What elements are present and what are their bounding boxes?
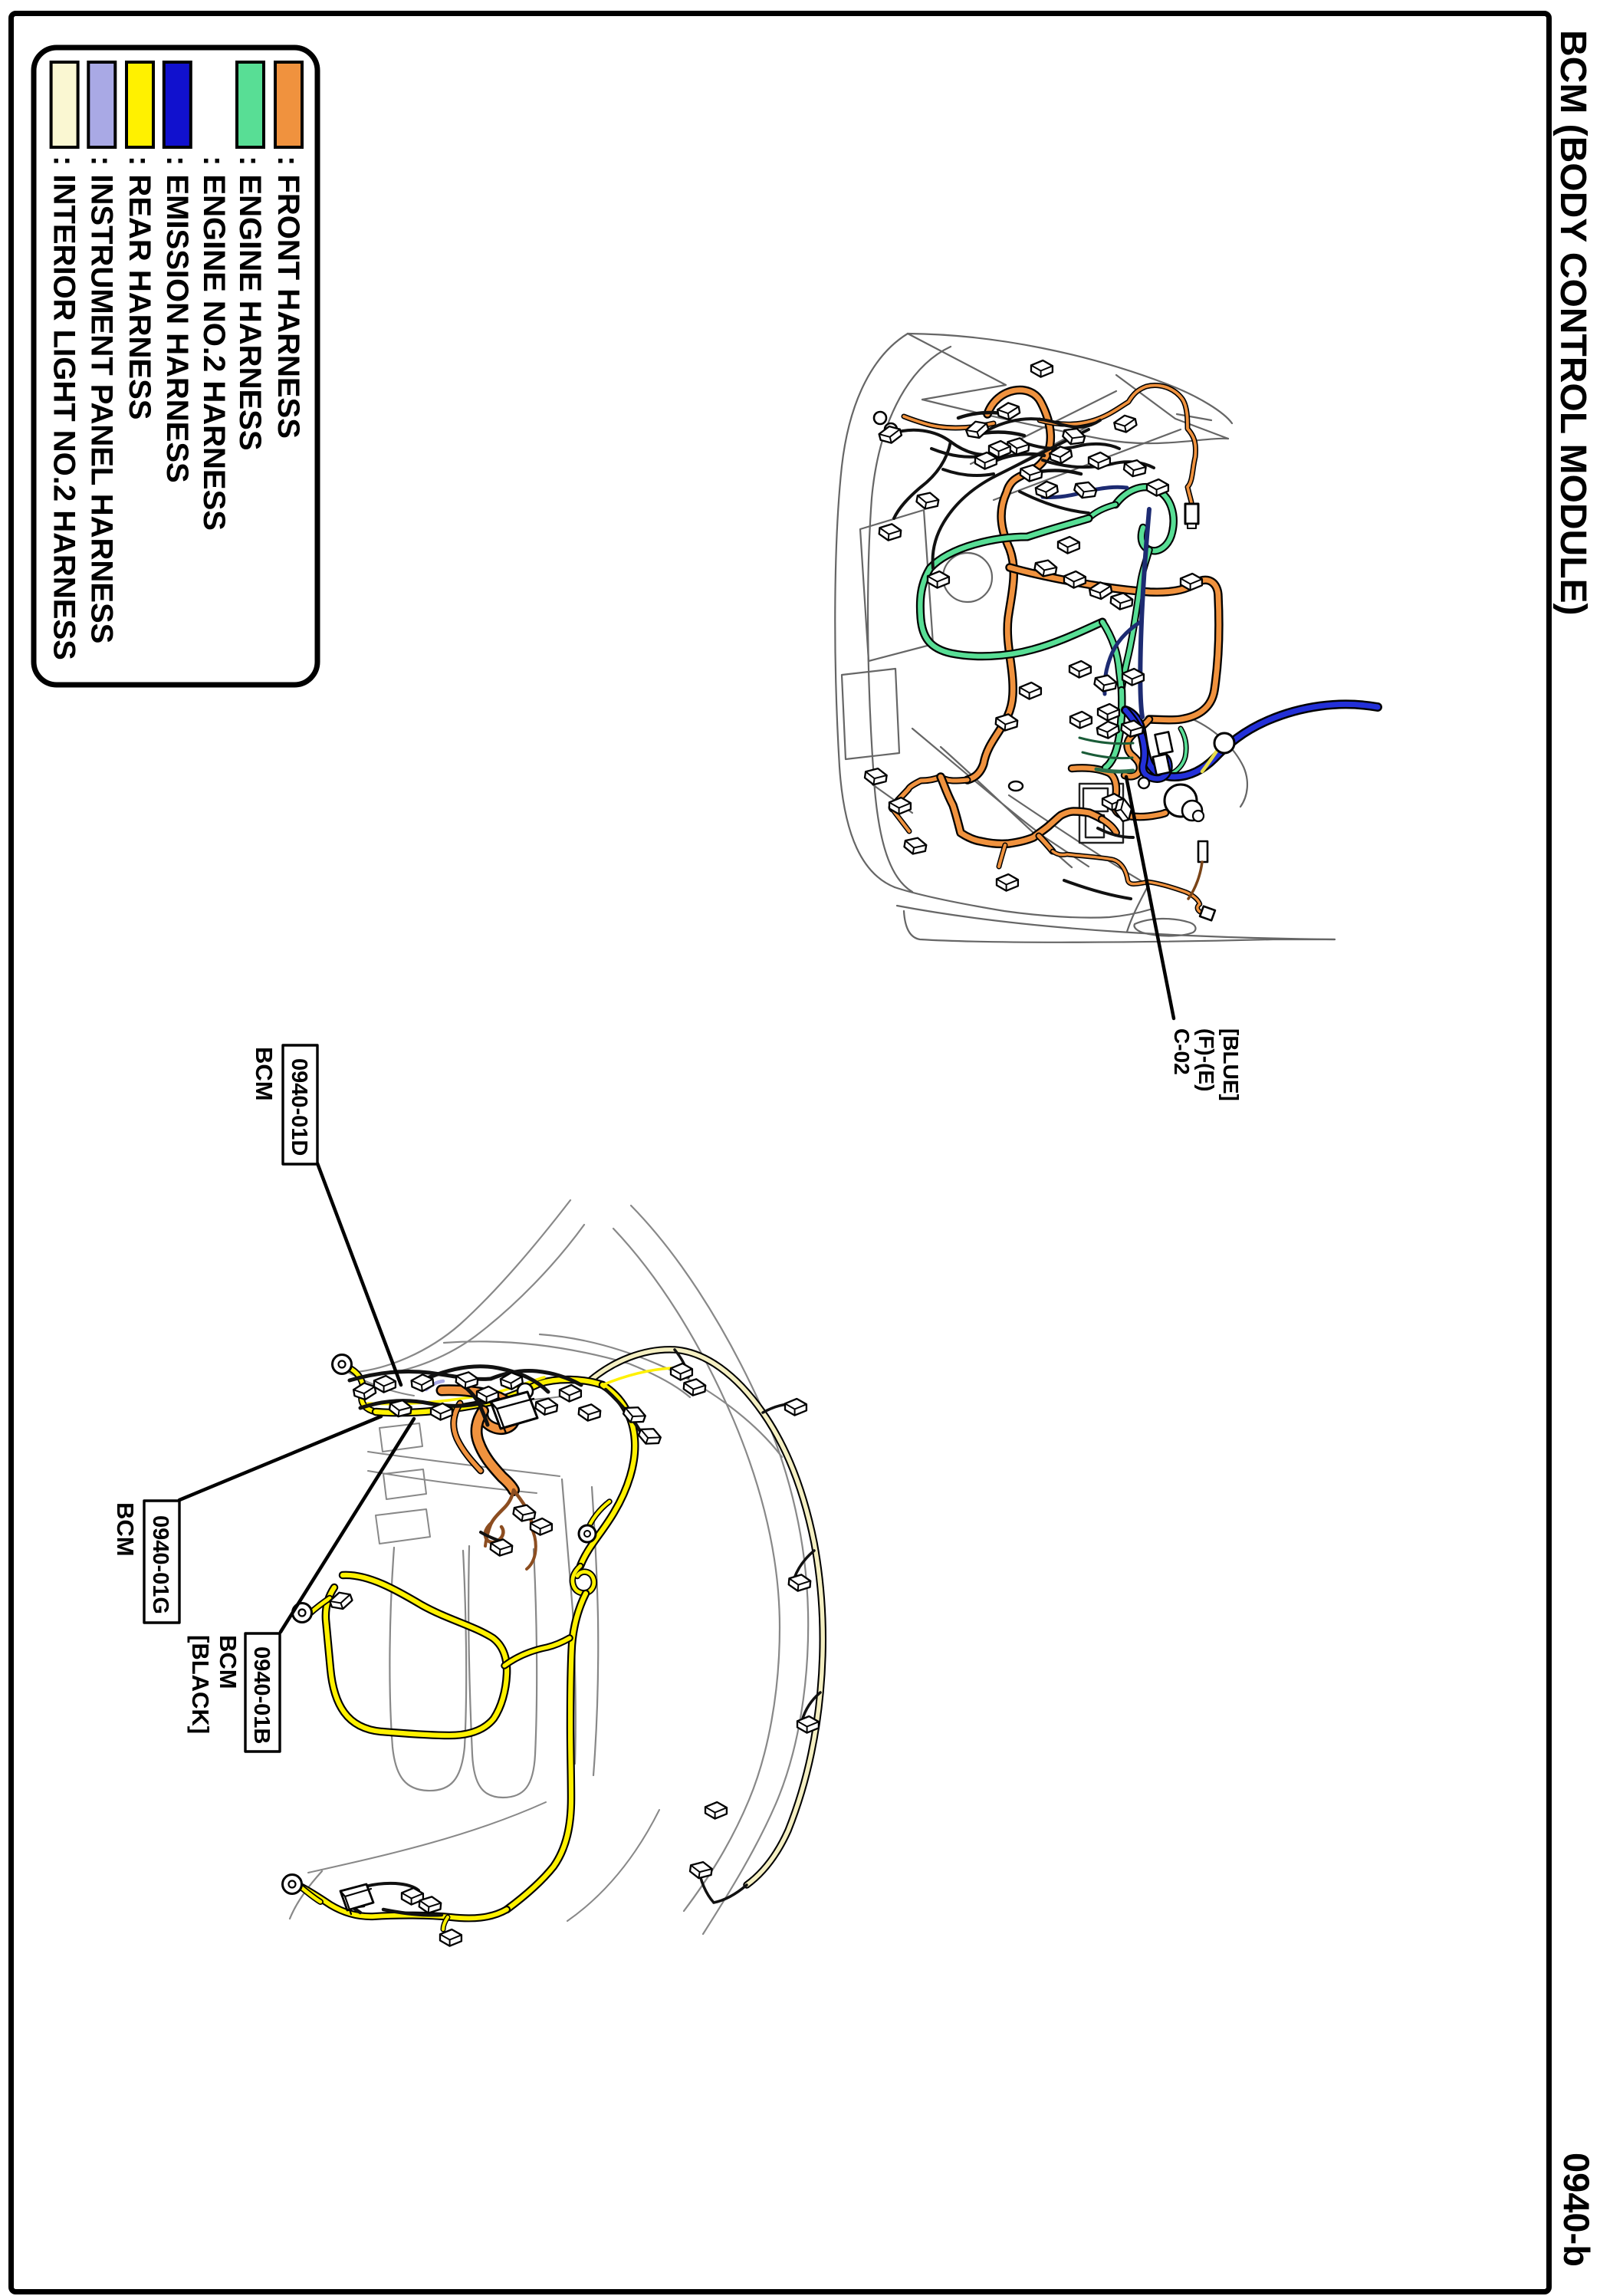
svg-text:: EMISSION HARNESS: : EMISSION HARNESS xyxy=(160,156,194,483)
svg-text:BCM: BCM xyxy=(112,1502,139,1557)
svg-text:0940-01D: 0940-01D xyxy=(287,1058,311,1156)
svg-text:: INSTRUMENT PANEL HARNESS: : INSTRUMENT PANEL HARNESS xyxy=(84,156,118,643)
svg-text:: REAR HARNESS: : REAR HARNESS xyxy=(123,156,156,419)
svg-text:0940-01B: 0940-01B xyxy=(249,1646,274,1744)
svg-text:[BLUE]: [BLUE] xyxy=(1219,1028,1243,1101)
svg-text:: ENGINE HARNESS: : ENGINE HARNESS xyxy=(233,156,267,451)
svg-text:(F)-(E): (F)-(E) xyxy=(1194,1028,1218,1091)
svg-text:BCM: BCM xyxy=(215,1635,241,1689)
svg-text:0940-01G: 0940-01G xyxy=(148,1515,172,1614)
svg-text:: INTERIOR LIGHT NO.2 HARNESS: : INTERIOR LIGHT NO.2 HARNESS xyxy=(48,156,81,660)
svg-text:: FRONT HARNESS: : FRONT HARNESS xyxy=(271,156,305,439)
svg-text:[BLACK]: [BLACK] xyxy=(187,1635,214,1734)
svg-text:0940-b: 0940-b xyxy=(1556,2153,1597,2267)
svg-text:BCM (BODY CONTROL MODULE): BCM (BODY CONTROL MODULE) xyxy=(1552,30,1593,616)
svg-text:: ENGINE NO.2 HARNESS: : ENGINE NO.2 HARNESS xyxy=(197,156,231,531)
svg-text:BCM: BCM xyxy=(251,1047,278,1101)
svg-text:C-02: C-02 xyxy=(1170,1028,1194,1075)
